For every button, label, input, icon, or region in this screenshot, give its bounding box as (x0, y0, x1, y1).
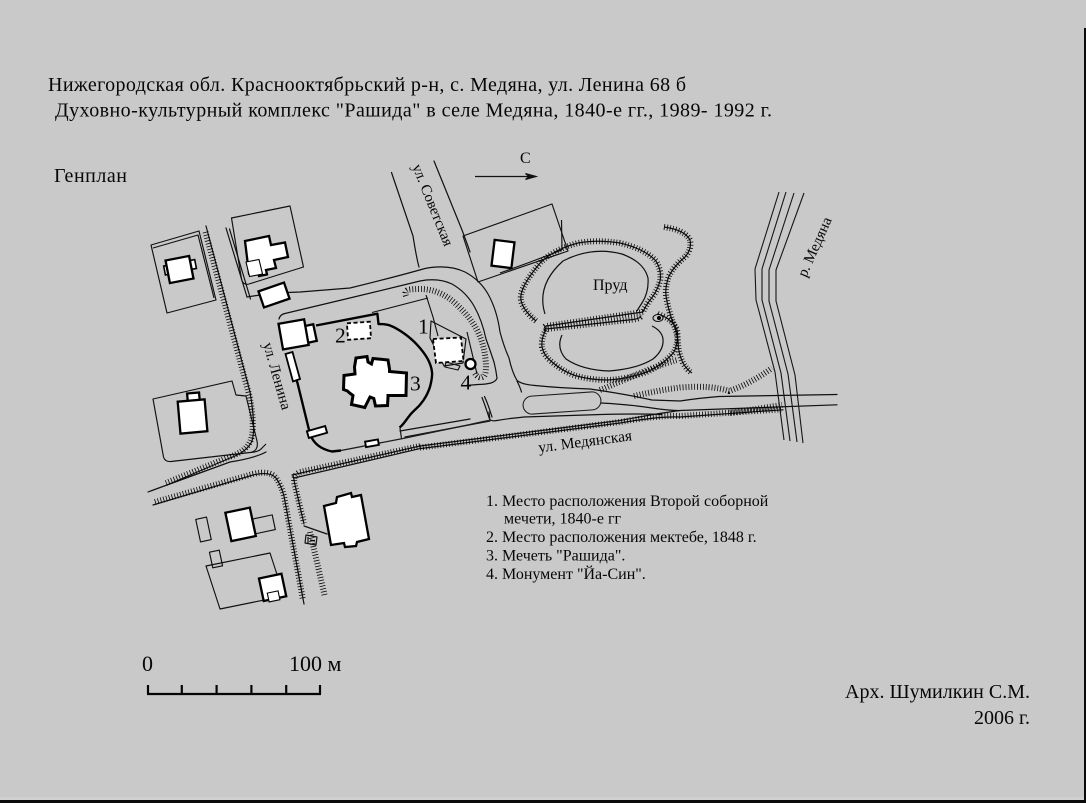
svg-text:Духовно-культурный комплекс "Р: Духовно-культурный комплекс "Рашида" в с… (55, 100, 772, 122)
svg-text:С: С (520, 150, 531, 167)
svg-text:1. Место расположения Второй с: 1. Место расположения Второй соборной (486, 493, 769, 510)
svg-text:мечети, 1840-е гг: мечети, 1840-е гг (504, 511, 622, 528)
svg-text:Арх. Шумилкин С.М.: Арх. Шумилкин С.М. (845, 681, 1030, 703)
svg-text:Пруд: Пруд (593, 277, 627, 294)
svg-text:4. Монумент "Йа-Син".: 4. Монумент "Йа-Син". (486, 564, 646, 583)
svg-text:Нижегородская обл. Краснооктяб: Нижегородская обл. Краснооктябрьский р-н… (48, 74, 686, 96)
svg-text:Генплан: Генплан (54, 165, 127, 187)
svg-text:4: 4 (461, 371, 472, 395)
svg-text:2. Место расположения мектебе,: 2. Место расположения мектебе, 1848 г. (486, 529, 757, 546)
svg-text:2: 2 (335, 324, 346, 348)
svg-text:100 м: 100 м (289, 651, 342, 676)
svg-text:1: 1 (418, 315, 429, 339)
svg-text:0: 0 (142, 651, 153, 676)
svg-text:3: 3 (410, 372, 421, 396)
svg-text:3. Мечеть "Рашида".: 3. Мечеть "Рашида". (486, 548, 625, 565)
svg-text:2006 г.: 2006 г. (974, 707, 1030, 729)
